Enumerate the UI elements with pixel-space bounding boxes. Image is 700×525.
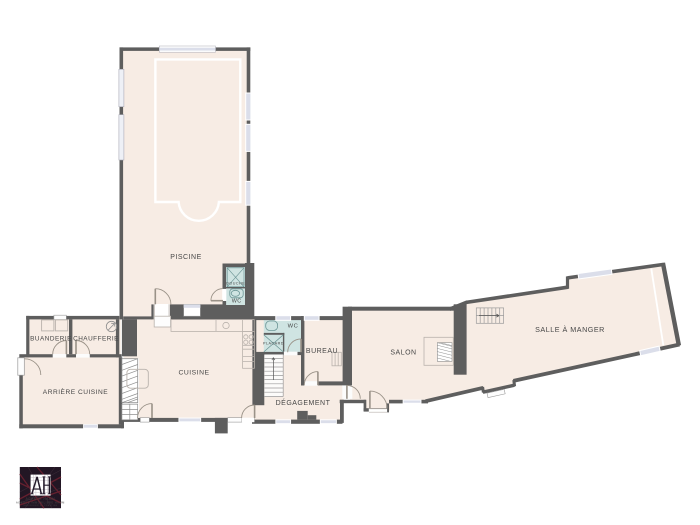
- svg-text:DOUCHE: DOUCHE: [226, 281, 245, 285]
- svg-text:BUREAU: BUREAU: [306, 348, 338, 355]
- svg-text:PLACARD: PLACARD: [263, 341, 284, 345]
- svg-text:BUANDERIE: BUANDERIE: [30, 335, 72, 342]
- svg-text:WC: WC: [288, 324, 299, 330]
- svg-text:CHAUFFERIE: CHAUFFERIE: [73, 335, 119, 342]
- svg-text:CUISINE: CUISINE: [178, 369, 209, 376]
- svg-text:AGENCE HAMM: AGENCE HAMM: [26, 497, 56, 501]
- svg-text:ARRIÈRE CUISINE: ARRIÈRE CUISINE: [43, 387, 108, 396]
- svg-text:SALLE À MANGER: SALLE À MANGER: [535, 325, 605, 334]
- svg-text:DÉGAGEMENT: DÉGAGEMENT: [276, 398, 331, 407]
- svg-text:IMMOBILIER DE PRESTIGE: IMMOBILIER DE PRESTIGE: [23, 505, 57, 507]
- svg-text:PISCINE: PISCINE: [170, 254, 202, 261]
- svg-text:SALON: SALON: [390, 349, 416, 356]
- svg-text:WC: WC: [232, 299, 242, 305]
- svg-text:AGENCE IMMOBILIERE HAMM: AGENCE IMMOBILIERE HAMM: [16, 500, 65, 504]
